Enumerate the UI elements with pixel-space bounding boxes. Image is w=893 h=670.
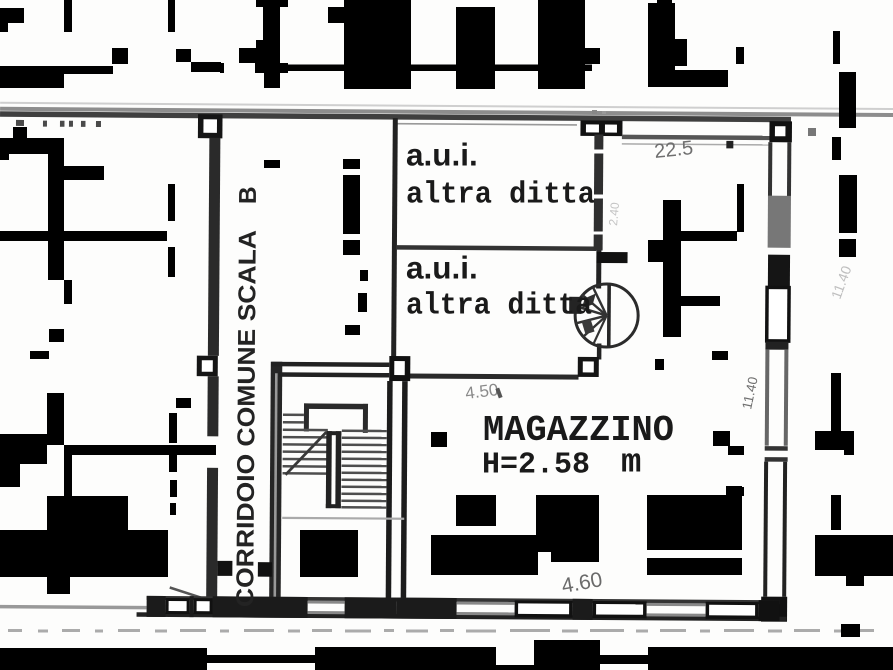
- svg-text:B: B: [235, 186, 262, 204]
- svg-text:2.40: 2.40: [606, 201, 622, 226]
- svg-text:22.5: 22.5: [653, 137, 694, 163]
- svg-text:altra ditta: altra ditta: [406, 178, 595, 213]
- svg-text:a.u.i.: a.u.i.: [406, 137, 478, 173]
- svg-text:H=2.58: H=2.58: [482, 448, 590, 483]
- svg-text:a.u.i.: a.u.i.: [406, 250, 478, 286]
- svg-text:m: m: [621, 445, 641, 483]
- svg-text:CORRIDOIO COMUNE SCALA: CORRIDOIO COMUNE SCALA: [232, 230, 262, 608]
- svg-text:4.50: 4.50: [464, 380, 499, 403]
- svg-text:MAGAZZINO: MAGAZZINO: [483, 410, 674, 451]
- svg-text:altra ditta: altra ditta: [406, 289, 592, 324]
